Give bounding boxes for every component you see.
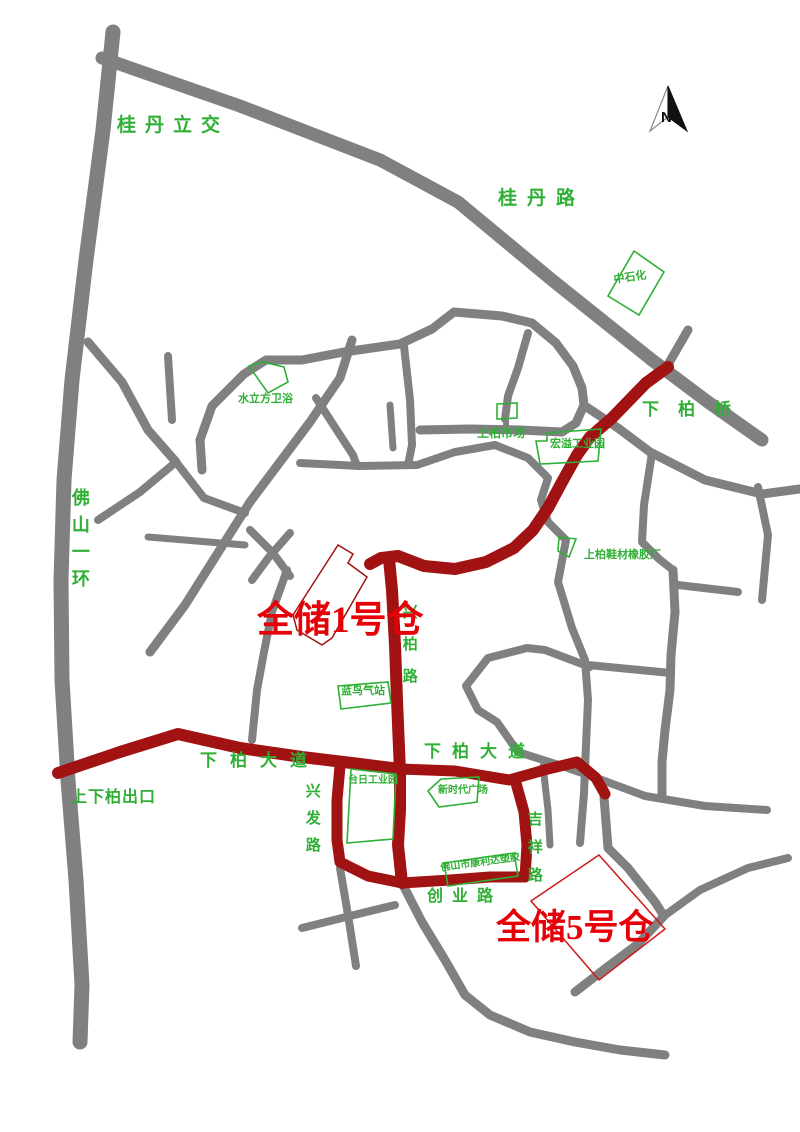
road-right-vert [758, 487, 768, 600]
road-loop-bottom [300, 463, 417, 466]
road-se-stub [664, 858, 788, 916]
compass-north-label: N [661, 110, 672, 126]
road-ew-mid-east [588, 665, 671, 673]
road-warehouse-west [252, 570, 287, 740]
road-nw-feeder [88, 342, 176, 462]
road-stub-right [678, 585, 738, 592]
label-new-era-plaza: 新时代广场 [438, 786, 488, 797]
label-tairi-industrial-park: 台日工业园 [348, 776, 398, 787]
label-jixiang-road: 吉祥路 [526, 811, 542, 895]
label-shangbai-shoe-factory: 上柏鞋材橡胶厂 [584, 550, 661, 562]
road-loop-se [562, 405, 584, 432]
label-foshan-first-ring: 佛山一环 [70, 488, 89, 596]
road-map: 桂丹立交桂丹路下柏桥中石化水立方卫浴上柏市场宏溢工业园上柏鞋材橡胶厂佛山一环蓝鸟… [0, 0, 800, 1132]
label-bluebird-gas-station: 蓝鸟气站 [341, 686, 385, 698]
quanchu-no5-label: 全储5号仓 [496, 910, 654, 947]
road-west-link [98, 462, 176, 520]
label-hongyi-industrial-park: 宏溢工业园 [550, 439, 605, 451]
label-xingfa-road: 兴发路 [304, 783, 320, 864]
road-gray-v545 [543, 766, 550, 845]
label-xiabai-avenue-west: 下柏大道 [200, 752, 320, 770]
label-watercube-sanitary: 水立方卫浴 [238, 394, 293, 406]
quanchu-no1-label: 全储1号仓 [257, 602, 424, 641]
label-guidan-interchange: 桂丹立交 [117, 116, 229, 136]
road-inner-diag [316, 398, 357, 466]
label-shangbai-market: 上柏市场 [477, 427, 525, 440]
road-west-se [176, 462, 245, 513]
road-nw-stub [168, 356, 172, 420]
map-canvas [0, 0, 800, 1132]
label-xiabai-bridge: 下柏桥 [642, 401, 750, 419]
road-se-curve [575, 797, 664, 992]
label-chuangye-road: 创业路 [427, 889, 502, 906]
label-xiabai-avenue-east: 下柏大道 [424, 743, 536, 761]
road-inner-vert-a [404, 346, 412, 465]
label-shangxiabai-exit: 上下柏出口 [71, 790, 156, 807]
road-inner-vert-b [390, 405, 393, 448]
road-east-vertical [662, 570, 675, 798]
label-guidan-road: 桂丹路 [498, 189, 585, 209]
